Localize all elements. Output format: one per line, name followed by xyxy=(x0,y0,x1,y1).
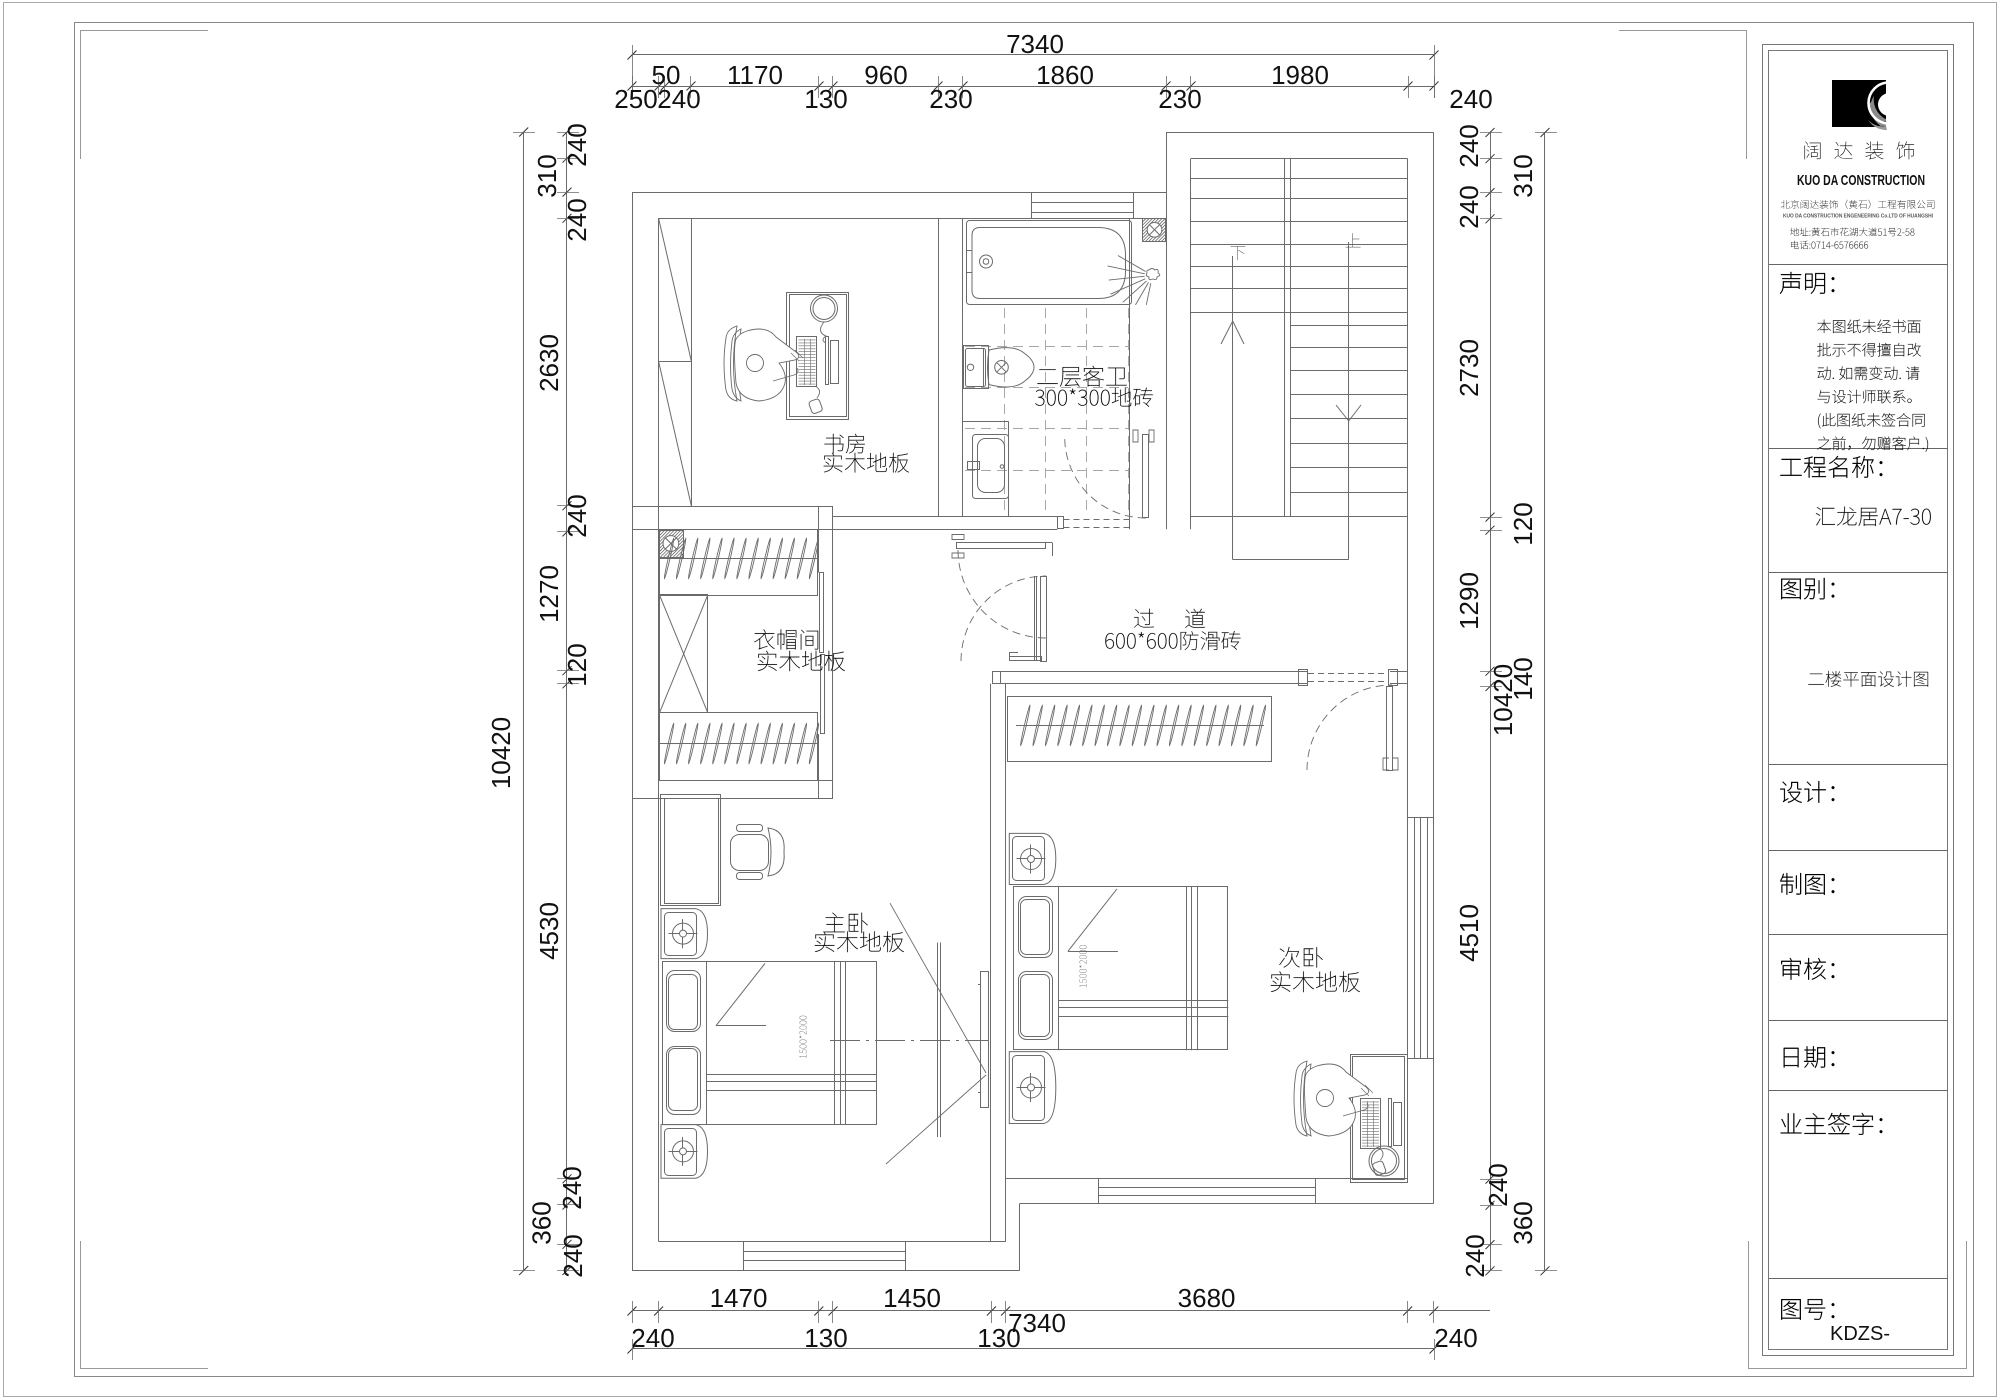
svg-text:230: 230 xyxy=(1158,84,1201,114)
svg-text:7340: 7340 xyxy=(1006,29,1064,59)
svg-text:240: 240 xyxy=(1454,124,1484,167)
svg-text:1450: 1450 xyxy=(883,1283,941,1313)
svg-text:1270: 1270 xyxy=(534,565,564,623)
svg-text:1290: 1290 xyxy=(1454,572,1484,630)
svg-text:3680: 3680 xyxy=(1178,1283,1236,1313)
svg-text:240: 240 xyxy=(1460,1234,1490,1277)
svg-text:240: 240 xyxy=(558,1234,588,1277)
svg-text:960: 960 xyxy=(864,60,907,90)
svg-text:240: 240 xyxy=(562,198,592,241)
svg-text:10420: 10420 xyxy=(486,717,516,789)
svg-text:1980: 1980 xyxy=(1271,60,1329,90)
svg-text:1170: 1170 xyxy=(727,60,783,90)
svg-text:240: 240 xyxy=(657,84,700,114)
svg-text:310: 310 xyxy=(532,154,562,197)
svg-text:250: 250 xyxy=(614,84,657,114)
svg-text:240: 240 xyxy=(562,494,592,537)
svg-text:KUO DA CONSTRUCTION: KUO DA CONSTRUCTION xyxy=(1797,172,1925,189)
svg-text:360: 360 xyxy=(1508,1201,1538,1244)
svg-text:360: 360 xyxy=(527,1201,557,1244)
svg-text:240: 240 xyxy=(562,123,592,166)
svg-text:10420: 10420 xyxy=(1488,664,1518,736)
svg-text:4510: 4510 xyxy=(1454,904,1484,962)
svg-text:4530: 4530 xyxy=(534,902,564,960)
svg-text:310: 310 xyxy=(1508,154,1538,197)
svg-text:2630: 2630 xyxy=(534,334,564,392)
svg-text:KUO DA CONSTRUCTION ENGENEERIN: KUO DA CONSTRUCTION ENGENEERING Co.LTD O… xyxy=(1783,214,1933,220)
svg-text:KDZS-: KDZS- xyxy=(1830,1323,1890,1345)
svg-text:2730: 2730 xyxy=(1454,339,1484,397)
svg-text:240: 240 xyxy=(557,1166,587,1209)
svg-text:120: 120 xyxy=(1508,502,1538,545)
svg-text:130: 130 xyxy=(804,84,847,114)
svg-text:230: 230 xyxy=(929,84,972,114)
svg-text:1470: 1470 xyxy=(710,1283,768,1313)
svg-text:7340: 7340 xyxy=(1008,1308,1066,1338)
svg-text:1860: 1860 xyxy=(1036,60,1094,90)
svg-text:240: 240 xyxy=(1449,84,1492,114)
svg-text:240: 240 xyxy=(1483,1163,1513,1206)
svg-text:240: 240 xyxy=(1454,185,1484,228)
svg-text:240: 240 xyxy=(1434,1323,1477,1353)
svg-text:120: 120 xyxy=(562,643,592,686)
